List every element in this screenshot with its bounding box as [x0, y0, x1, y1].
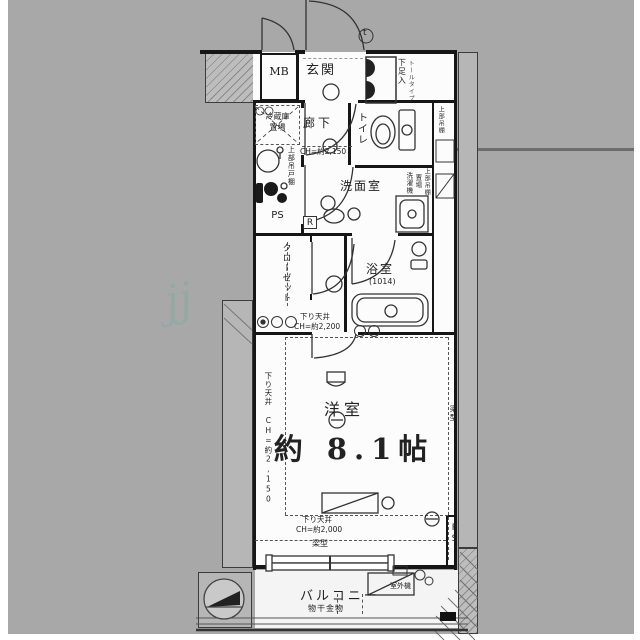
- wall: [454, 50, 457, 570]
- wall: [344, 236, 347, 332]
- drop1-label-1: 下り天井: [300, 313, 330, 321]
- fridge-label-1: 冷蔵庫: [255, 113, 300, 121]
- fridge-label-2: 置場: [255, 124, 300, 132]
- wall: [348, 103, 351, 165]
- washer-label-1: 洗濯機: [405, 172, 412, 202]
- ac-outdoor-label: 室外機: [390, 583, 411, 590]
- wall: [200, 50, 262, 54]
- door-mark-label: t: [363, 29, 367, 38]
- hatched-wall-bottomright: [458, 548, 478, 634]
- main-left-drop-label: 下り天井 CH=約2,150: [264, 372, 272, 468]
- wall: [253, 565, 273, 569]
- hatched-wall-topleft: [205, 53, 258, 103]
- bottomleft-block: [198, 572, 252, 628]
- wall: [253, 100, 256, 570]
- wall: [432, 103, 434, 233]
- drop1-label-2: CH=約2,200: [294, 323, 340, 331]
- toilet-label: トイレ: [355, 112, 366, 160]
- left-wall-band: [222, 300, 253, 568]
- bath-size-label: (1014): [369, 278, 396, 286]
- closet-label: クローゼット: [280, 243, 289, 325]
- hallway-ch-label: CH=約2,150: [300, 148, 346, 156]
- toilet-shelf-label: 上部吊棚: [437, 106, 443, 140]
- main-room-size-label: 約 8.1帖: [258, 434, 450, 464]
- drop-ceiling-line: [285, 337, 286, 515]
- shoe-cabinet-label: 下足入: [397, 58, 405, 106]
- wall: [301, 155, 304, 167]
- wall: [355, 165, 433, 168]
- r-box: R: [303, 216, 317, 229]
- wall: [301, 103, 304, 108]
- shoe-cabinet-sublabel: トールタイプ: [407, 60, 413, 106]
- wall: [297, 53, 299, 103]
- mb-label: MB: [260, 66, 298, 78]
- wall: [253, 233, 352, 236]
- main-room-label: 洋室: [324, 402, 364, 419]
- entrance-line: [303, 58, 363, 59]
- washer-label-2: 置場: [414, 174, 421, 196]
- bath-label: 浴室: [366, 263, 394, 276]
- wall: [358, 332, 457, 335]
- kitchen-cabinet-label: 上部吊戸棚: [287, 146, 294, 188]
- drop-ceiling-line: [285, 337, 448, 338]
- entrance-label: 玄関: [306, 64, 336, 78]
- drop2-label-2: CH=約2,000: [296, 526, 342, 534]
- wall: [310, 236, 312, 242]
- ps-bottom-label: PS: [449, 523, 458, 551]
- exterior-wall-line: [457, 148, 634, 151]
- wall: [432, 233, 434, 332]
- floor-plan-canvas: MB 玄関 下足入 トールタイプ t 冷蔵庫 置場 上部吊戸棚 PS 廊下 CH…: [0, 0, 640, 640]
- drop2-label-1: 下り天井: [302, 516, 332, 524]
- wall: [310, 294, 312, 300]
- washer-shelf-label: 上部吊棚: [423, 168, 429, 198]
- balcony-label: バルコニー: [300, 590, 380, 604]
- right-wall-band: [458, 52, 478, 548]
- beam-bottom-label: 梁型: [312, 540, 328, 548]
- beam-right-label: 梁型: [449, 405, 457, 429]
- drop-ceiling-line: [255, 540, 446, 541]
- wall: [366, 50, 457, 54]
- wall: [253, 332, 312, 335]
- wall: [398, 233, 434, 236]
- hook-label: 物干金物: [308, 605, 344, 613]
- washroom-label: 洗面室: [340, 180, 382, 193]
- hallway-label: 廊下: [303, 117, 333, 130]
- kitchen-ps-label: PS: [255, 211, 300, 222]
